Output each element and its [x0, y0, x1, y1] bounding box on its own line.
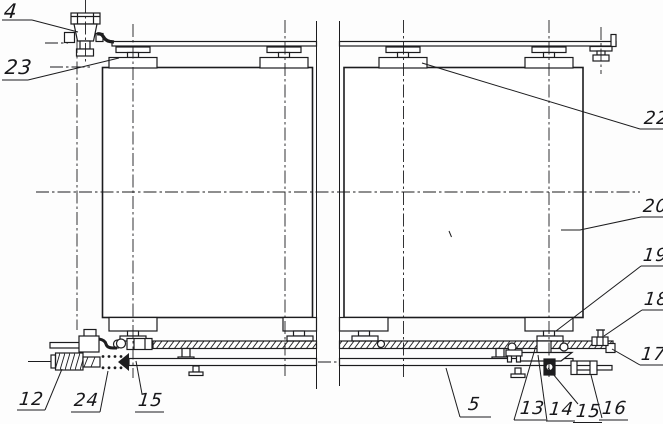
top-hanger [260, 47, 308, 68]
part-label-13: 13 [519, 400, 546, 418]
coupling-cylinder [571, 361, 597, 375]
threaded-body [56, 353, 84, 370]
part-label-5: 5 [467, 396, 481, 414]
screw-tensioner [28, 353, 129, 371]
part-label-16: 16 [601, 400, 628, 418]
rail-end-post [611, 35, 616, 47]
part-label-18: 18 [643, 291, 663, 309]
right-drum [344, 68, 583, 318]
bottom-hanger [340, 318, 389, 342]
left-drum [103, 68, 313, 318]
part-label-15-right: 15 [575, 403, 602, 421]
bottom-hangers [109, 318, 573, 342]
part-label-14: 14 [548, 401, 575, 419]
tensioner-end-cap [51, 355, 56, 368]
leader-18 [604, 310, 663, 336]
part-label-20: 20 [642, 198, 663, 216]
part-label-4: 4 [3, 1, 19, 21]
bottom-hanger [283, 318, 317, 342]
top-hanger [379, 47, 427, 68]
part-label-22: 22 [643, 110, 663, 128]
drive-shaft [129, 359, 573, 366]
part-label-23: 23 [4, 57, 34, 77]
cone [118, 353, 129, 371]
part-label-15-left: 15 [137, 392, 164, 410]
top-hangers [109, 47, 612, 69]
overhead-rail [112, 35, 616, 47]
patent-figure: 4 23 22 20 19 18 17 12 24 15 5 13 14 15 … [0, 0, 663, 424]
technical-drawing [0, 0, 663, 424]
part-label-19: 19 [642, 247, 663, 265]
break-lines [317, 21, 340, 389]
limit-bracket [592, 330, 608, 346]
part-label-24: 24 [73, 392, 100, 410]
valve-assembly [65, 13, 115, 56]
part-label-17: 17 [640, 346, 663, 364]
rod-stub [597, 366, 612, 371]
part-label-12: 12 [18, 391, 45, 409]
